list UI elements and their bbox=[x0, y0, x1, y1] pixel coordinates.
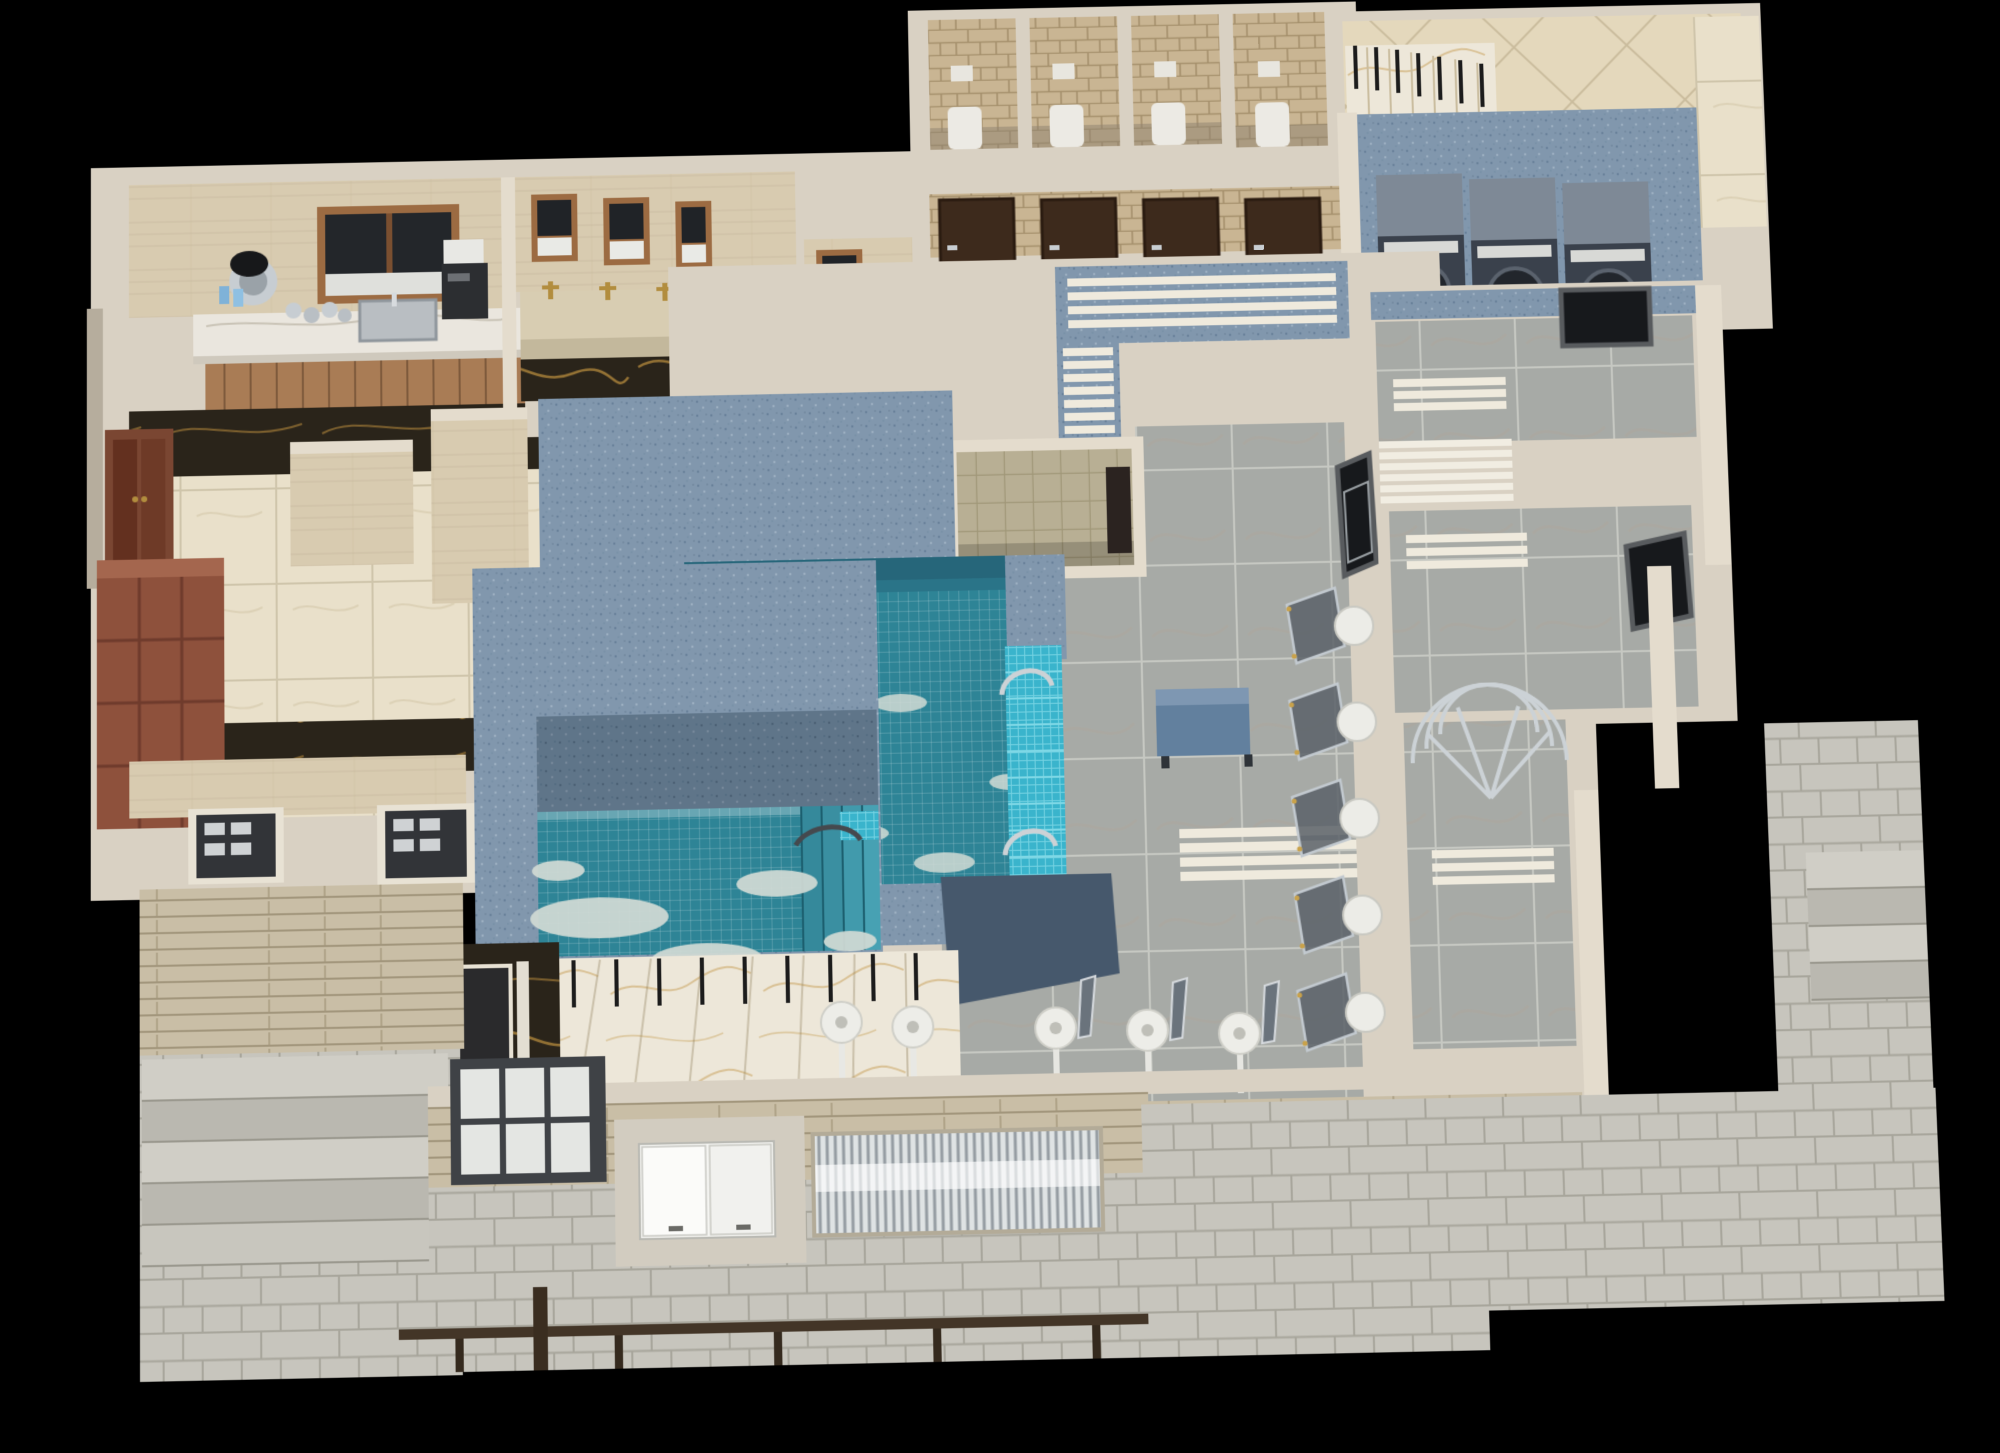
pavement-southeast bbox=[1141, 1088, 1944, 1318]
toilet bbox=[1151, 102, 1186, 145]
white-slat-rack bbox=[1393, 377, 1507, 411]
grid-window bbox=[450, 1056, 607, 1185]
marble-staircase bbox=[1345, 43, 1497, 117]
cistern bbox=[1052, 63, 1074, 79]
window-sill bbox=[325, 272, 451, 296]
outdoor-cabinet bbox=[614, 1116, 806, 1267]
railing-post-tall bbox=[533, 1287, 548, 1371]
white-slat-rack bbox=[1432, 848, 1555, 885]
shower-wall-window bbox=[1337, 454, 1377, 576]
bottle bbox=[233, 289, 243, 307]
cabinet-handle bbox=[736, 1224, 750, 1229]
cistern bbox=[1154, 61, 1176, 77]
window-mullion bbox=[386, 213, 392, 273]
toilet-stall bbox=[1233, 12, 1328, 148]
louver-door bbox=[188, 807, 284, 884]
render-canvas bbox=[0, 0, 2000, 1453]
white-slat-rack bbox=[1406, 533, 1528, 570]
toilet-stall bbox=[928, 18, 1018, 150]
divider-wall bbox=[501, 177, 517, 410]
room-c-floor bbox=[1403, 719, 1576, 1049]
exterior-steps-right bbox=[1806, 850, 1930, 1000]
cistern bbox=[951, 65, 973, 81]
dark-window bbox=[1561, 288, 1651, 345]
exterior-steps-left bbox=[142, 1053, 450, 1266]
toilet bbox=[1255, 102, 1290, 147]
mirror bbox=[531, 194, 578, 262]
west-outer-wall-face bbox=[87, 309, 103, 589]
louver-door bbox=[377, 803, 475, 884]
wood-cabinets bbox=[205, 357, 525, 409]
coffee-machine bbox=[441, 239, 488, 319]
floorplan-svg bbox=[0, 0, 2000, 1453]
stone-wall-left bbox=[140, 883, 465, 1056]
bottle bbox=[219, 286, 229, 304]
toilet-stall bbox=[1131, 14, 1222, 146]
cyan-mosaic-steps bbox=[1005, 645, 1067, 882]
service-window bbox=[317, 204, 460, 304]
sauna-door bbox=[1106, 467, 1132, 554]
entrance-double-door bbox=[105, 429, 174, 571]
upper-pool-surround bbox=[538, 390, 955, 567]
floorplan-scene bbox=[0, 0, 2000, 1453]
floor-east-of-sauna bbox=[1135, 422, 1350, 577]
sink-faucet bbox=[392, 293, 397, 307]
toilet bbox=[948, 106, 983, 149]
lower-pool-inner-wall bbox=[536, 710, 878, 812]
ne-outer-wall bbox=[1693, 16, 1767, 228]
mirror bbox=[675, 201, 712, 269]
metal-slat-grille bbox=[813, 1128, 1104, 1235]
cabinet-handle bbox=[669, 1226, 683, 1231]
toilet-stall bbox=[1029, 16, 1120, 148]
cistern bbox=[1258, 61, 1280, 77]
partition-wall bbox=[290, 440, 414, 567]
toilet bbox=[1049, 104, 1084, 147]
mirror bbox=[603, 197, 650, 265]
